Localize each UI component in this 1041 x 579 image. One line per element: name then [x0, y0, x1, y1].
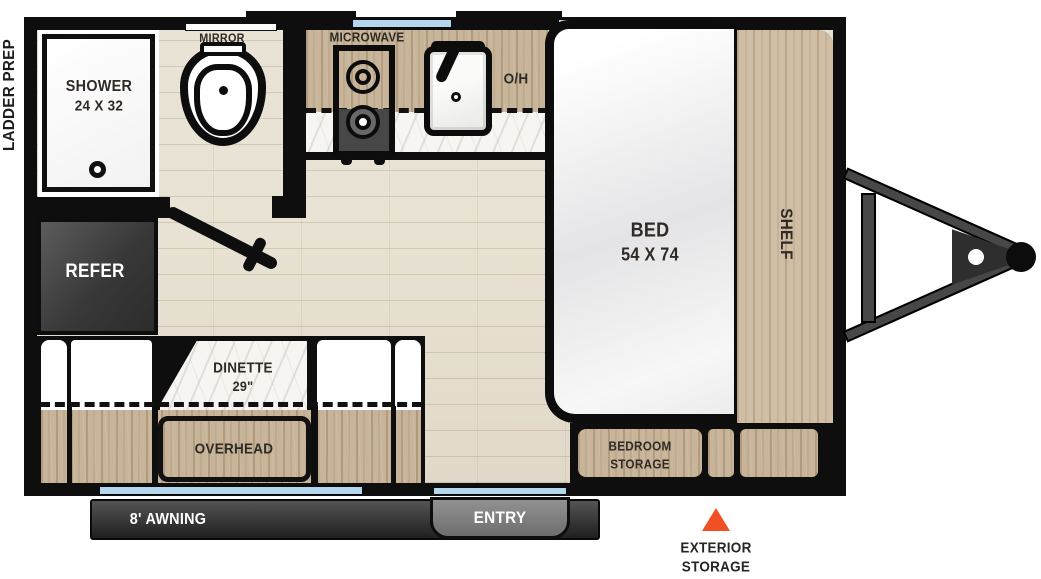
microwave-label: MICROWAVE — [329, 30, 404, 45]
seat-divider-4 — [391, 406, 396, 483]
tongue-crossbar — [861, 193, 876, 323]
window-bottom-left — [99, 486, 363, 495]
seat-divider-3 — [311, 406, 318, 483]
bed-label-line2: 54 X 74 — [621, 245, 679, 266]
exterior-storage-label-line2: STORAGE — [682, 559, 750, 576]
bed-label-line1: BED — [631, 220, 670, 243]
toilet-drain-dot — [219, 86, 228, 95]
oh-cabinet-label: O/H — [504, 71, 529, 88]
mirror-strip — [185, 23, 277, 31]
bathroom-wall — [283, 30, 306, 218]
entry-label: ENTRY — [474, 508, 527, 528]
shower-drain — [89, 161, 106, 178]
toilet-bowl-inner — [194, 64, 252, 136]
seat-divider-1 — [67, 406, 72, 483]
seating-dashed-line — [40, 402, 422, 407]
dinette-label-line2: 29" — [233, 378, 254, 394]
cooktop-foot-left — [341, 156, 352, 165]
bedroom-storage-label-line2: STORAGE — [610, 457, 670, 472]
kitchen-sink — [424, 46, 492, 136]
ladder-prep-label: LADDER PREP — [1, 12, 21, 177]
shower-label-line1: SHOWER — [66, 78, 132, 96]
sink-drain — [451, 92, 461, 102]
hitch-ball — [1006, 242, 1036, 272]
shower-label-line2: 24 X 32 — [75, 98, 123, 115]
exterior-storage-marker-icon — [702, 508, 730, 531]
bedroom-storage-panel-2 — [708, 429, 734, 477]
shelf-label: SHELF — [776, 208, 796, 260]
window-top-left — [352, 19, 452, 28]
bedroom-storage-label-line1: BEDROOM — [609, 439, 672, 454]
cooktop-foot-right — [374, 156, 385, 165]
toilet-tank — [200, 42, 246, 56]
wall-below-shower — [37, 197, 170, 218]
floorplan-canvas: LADDER PREP SHOWER 24 X 32 MIRROR REFER … — [0, 0, 1041, 579]
overhead-label: OVERHEAD — [195, 441, 274, 458]
burner-bottom-inner — [355, 114, 371, 130]
hitch-coupler-hole — [968, 249, 984, 265]
exterior-storage-label-line1: EXTERIOR — [680, 540, 751, 557]
door-jamb — [272, 196, 306, 218]
window-entry-threshold — [433, 487, 567, 495]
burner-top-inner — [355, 69, 371, 85]
bedroom-storage-panel-3 — [740, 429, 818, 477]
refer-label: REFER — [65, 261, 124, 283]
awning-label: 8' AWNING — [130, 511, 207, 529]
dinette-label-line1: DINETTE — [213, 360, 273, 377]
